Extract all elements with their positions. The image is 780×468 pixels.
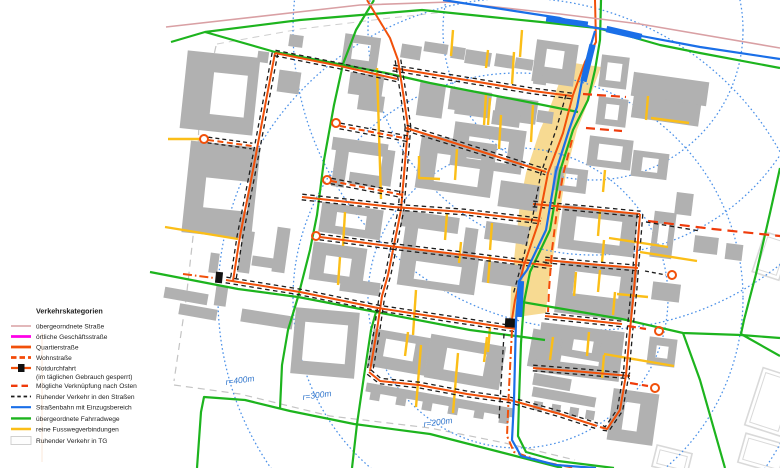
svg-text:Mögliche Verknüpfung nach Oste: Mögliche Verknüpfung nach Osten [36, 383, 137, 390]
svg-text:Quartierstraße: Quartierstraße [36, 344, 79, 351]
svg-text:örtliche Geschäftsstraße: örtliche Geschäftsstraße [36, 334, 108, 341]
svg-text:übergeordnete Fahrradwege: übergeordnete Fahrradwege [36, 416, 120, 423]
svg-text:Ruhender Verkehr in TG: Ruhender Verkehr in TG [36, 438, 107, 445]
svg-text:Ruhender Verkehr in den Straße: Ruhender Verkehr in den Straßen [36, 394, 135, 401]
svg-text:Verkehrskategorien: Verkehrskategorien [36, 306, 103, 315]
svg-text:Straßenbahn mit Einzugsbereich: Straßenbahn mit Einzugsbereich [36, 405, 132, 412]
svg-text:übergeorndnete Straße: übergeorndnete Straße [36, 323, 105, 330]
svg-text:(im täglichen Gebrauch gesperr: (im täglichen Gebrauch gesperrt) [36, 374, 132, 381]
svg-text:Wohnstraße: Wohnstraße [36, 355, 72, 362]
svg-text:reine Fusswegverbindungen: reine Fusswegverbindungen [36, 426, 119, 433]
